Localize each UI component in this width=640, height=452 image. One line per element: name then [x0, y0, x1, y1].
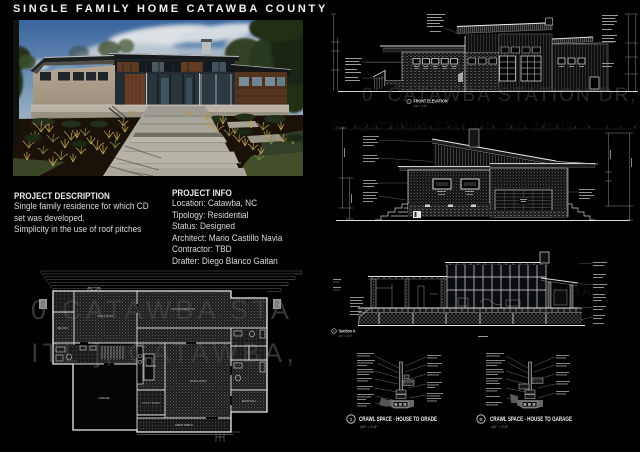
svg-text:FRONT PORCH: FRONT PORCH [175, 424, 193, 427]
svg-text:UTILITY ROOM: UTILITY ROOM [143, 402, 160, 405]
svg-text:2: 2 [350, 417, 353, 423]
svg-text:B: B [479, 417, 482, 423]
svg-text:CRAWL SPACE - HOUSE TO GRADE: CRAWL SPACE - HOUSE TO GRADE [359, 416, 437, 423]
svg-text:1/4" = 1'-0": 1/4" = 1'-0" [339, 334, 353, 338]
svg-text:GARAGE: GARAGE [98, 396, 109, 400]
svg-text:BEDROOM 2: BEDROOM 2 [242, 400, 257, 403]
svg-text:CRAWL SPACE - HOUSE TO GARAGE: CRAWL SPACE - HOUSE TO GARAGE [490, 416, 572, 423]
svg-text:Section A: Section A [339, 328, 357, 333]
svg-text:BED RM 3: BED RM 3 [57, 327, 69, 330]
svg-text:1/2" = 1'-0": 1/2" = 1'-0" [360, 425, 378, 429]
svg-text:A: A [333, 329, 335, 333]
svg-text:1/2" = 1'-0": 1/2" = 1'-0" [491, 425, 509, 429]
svg-text:DINING ROOM: DINING ROOM [190, 380, 206, 383]
